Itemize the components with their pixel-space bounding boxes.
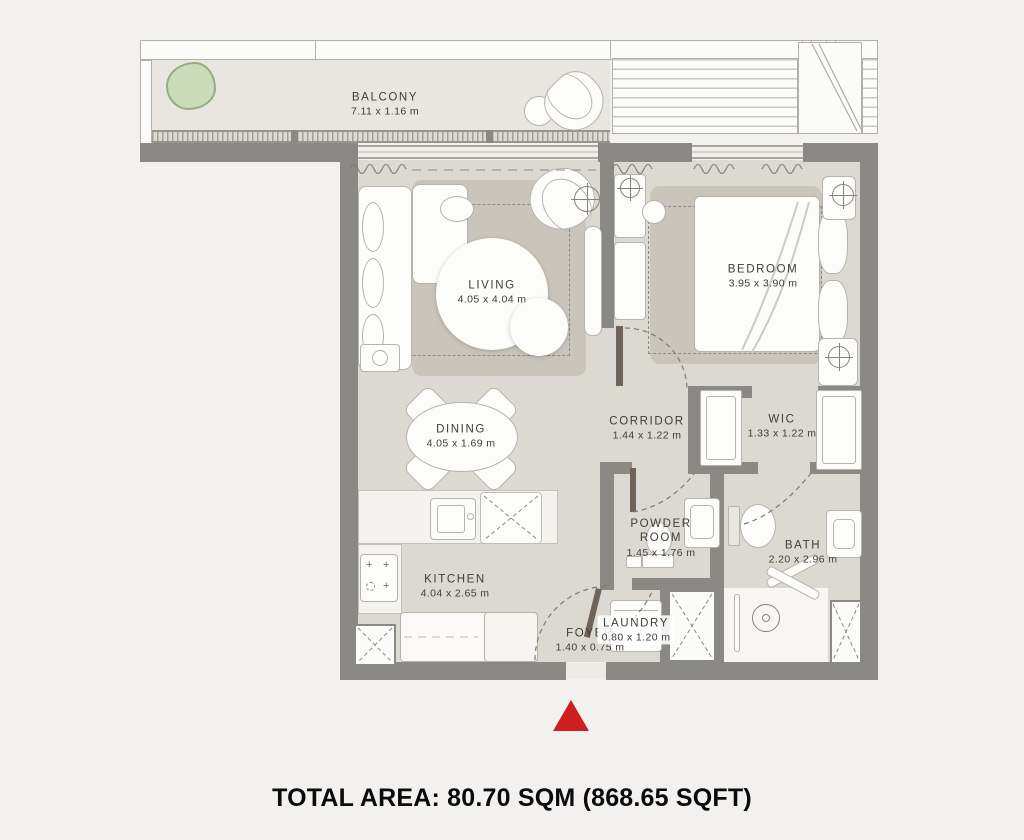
ottoman (440, 196, 474, 222)
closet (816, 390, 862, 470)
burner-icon: + (366, 560, 372, 571)
railing-post (486, 130, 493, 143)
entrance-opening (566, 663, 606, 679)
dishwasher (480, 492, 542, 544)
room-name: DINING (427, 422, 496, 436)
room-name: LAUNDRY (602, 616, 671, 630)
slab-joint (610, 40, 611, 60)
room-name: LIVING (458, 278, 527, 292)
lamp-icon (620, 178, 640, 198)
closet-panel (822, 396, 856, 464)
total-area-label: TOTAL AREA: 80.70 SQM (868.65 SQFT) (0, 784, 1024, 813)
plant-icon (166, 62, 216, 110)
lamp-icon (832, 184, 854, 206)
wic-label: WIC 1.33 x 1.22 m (748, 412, 817, 439)
door-leaf (630, 468, 636, 512)
slab-joint (315, 40, 316, 60)
balcony-railing (152, 130, 610, 143)
diagonal-panel (798, 42, 862, 134)
shower-drain-icon (752, 604, 780, 632)
louver-panel (862, 58, 878, 134)
wall (688, 386, 700, 470)
slab-strip (140, 40, 878, 60)
burner-icon: + (383, 560, 389, 571)
room-dims: 0.80 x 1.20 m (602, 632, 671, 644)
sofa-cushion (362, 202, 384, 252)
lamp-icon (828, 346, 850, 368)
room-name: BATH (769, 538, 838, 552)
bedroom-label: BEDROOM 3.95 x 3.90 m (728, 262, 799, 289)
room-name: WIC (748, 412, 817, 426)
laundry-label: LAUNDRY 0.80 x 1.20 m (598, 615, 675, 644)
side-table (360, 344, 400, 372)
shaft (668, 590, 716, 662)
shaft (830, 600, 862, 664)
room-dims: 4.05 x 1.69 m (427, 438, 496, 450)
toilet-tank (728, 506, 740, 546)
entrance-marker-icon (553, 700, 589, 731)
sofa-cushion (362, 258, 384, 308)
wall (600, 162, 614, 328)
room-dims: 4.04 x 2.65 m (421, 588, 490, 600)
living-label-bubble-small (510, 298, 568, 356)
wall (140, 143, 358, 162)
ceiling-light-icon (574, 186, 600, 212)
room-dims: 3.95 x 3.90 m (728, 278, 799, 290)
powder-room-label: POWDER ROOM 1.45 x 1.76 m (623, 517, 699, 559)
wall (606, 662, 878, 680)
window (692, 145, 803, 159)
sink-basin (437, 505, 465, 533)
wall (340, 143, 358, 680)
towel-rail (734, 594, 740, 652)
drain-center (762, 614, 770, 622)
room-dims: 1.44 x 1.22 m (609, 430, 684, 442)
door-leaf (616, 326, 623, 386)
balcony-left-wall (140, 60, 152, 144)
louver-panel (612, 58, 798, 134)
kitchen-sink (430, 498, 476, 540)
room-dims: 1.45 x 1.76 m (623, 547, 699, 559)
closet-panel (706, 396, 736, 460)
wall (632, 578, 712, 590)
room-dims: 7.11 x 1.16 m (351, 106, 419, 118)
washer-panel (614, 610, 658, 611)
room-name: BALCONY (351, 90, 419, 104)
side-table-plant (372, 350, 388, 366)
shaft (354, 624, 396, 666)
wall (860, 143, 878, 680)
room-name: BEDROOM (728, 262, 799, 276)
room-dims: 4.05 x 4.04 m (458, 294, 527, 306)
room-name: KITCHEN (421, 572, 490, 586)
closet (700, 390, 742, 466)
balcony-label: BALCONY 7.11 x 1.16 m (351, 90, 419, 117)
railing-post (291, 130, 298, 143)
desk-chair (642, 200, 666, 224)
corridor-label: CORRIDOR 1.44 x 1.22 m (609, 414, 684, 441)
room-name: POWDER ROOM (623, 517, 699, 546)
floor-plan-page: + + + (0, 0, 1024, 840)
living-label: LIVING 4.05 x 4.04 m (458, 278, 527, 305)
wall (598, 143, 692, 162)
room-name: CORRIDOR (609, 414, 684, 428)
bath-label: BATH 2.20 x 2.96 m (769, 538, 838, 565)
wall (600, 462, 614, 590)
room-dims: 1.33 x 1.22 m (748, 428, 817, 440)
dining-label: DINING 4.05 x 1.69 m (427, 422, 496, 449)
room-dims: 2.20 x 2.96 m (769, 554, 838, 566)
burner-icon: + (383, 581, 389, 592)
window (358, 145, 598, 159)
pillow (818, 280, 848, 344)
kitchen-label: KITCHEN 4.04 x 2.65 m (421, 572, 490, 599)
dresser (614, 242, 646, 320)
burner-icon (366, 582, 375, 591)
island-cabinet (484, 612, 538, 662)
faucet-icon (467, 513, 474, 520)
tv-console (584, 226, 602, 336)
